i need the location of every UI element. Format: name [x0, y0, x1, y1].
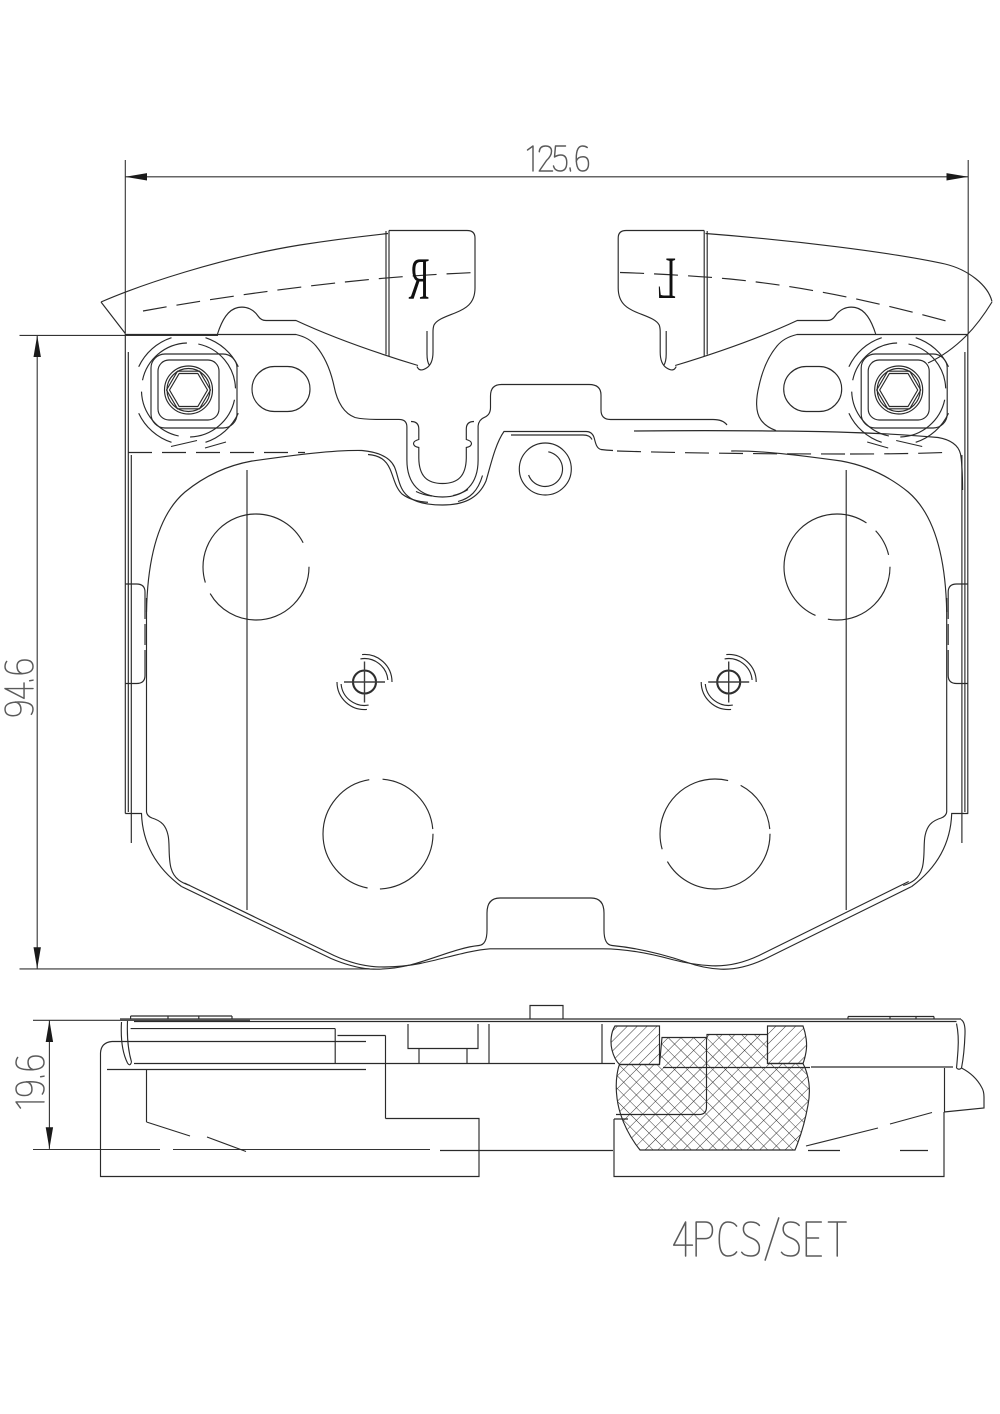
svg-text:R: R: [409, 246, 430, 312]
svg-text:L: L: [657, 245, 676, 311]
